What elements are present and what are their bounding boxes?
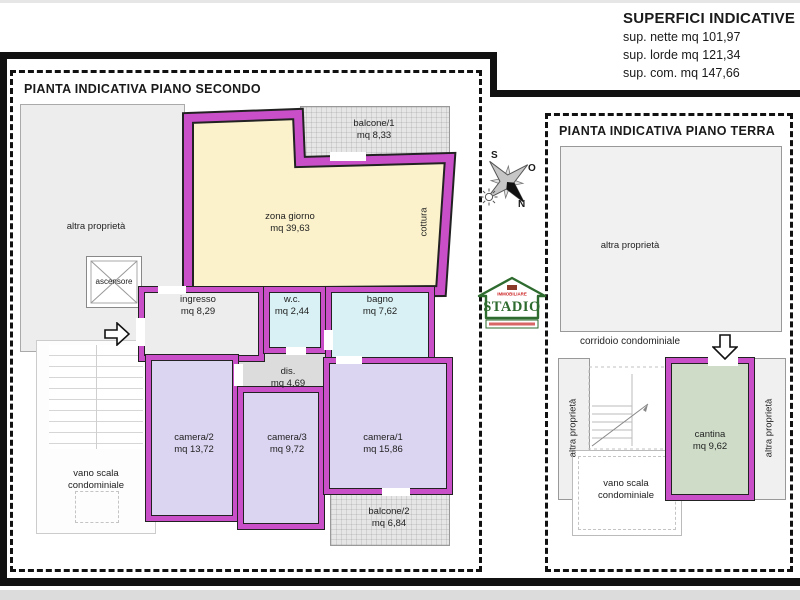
label-vano-scala-sx: vano scala condominiale: [56, 468, 136, 493]
camera1-area-value: mq 15,86: [323, 444, 443, 456]
balcone1-name: balcone/1: [314, 118, 434, 130]
zona-giorno-name: zona giorno: [230, 211, 350, 223]
frame-left: [0, 52, 7, 586]
stairs-divider: [96, 345, 97, 449]
stairs-terra-icon: [588, 366, 670, 450]
frame-bottom: [0, 578, 800, 586]
label-camera2: camera/2 mq 13,72: [134, 432, 254, 457]
frame-top-left: [0, 52, 497, 59]
balcone2-name: balcone/2: [329, 506, 449, 518]
sun-icon: [480, 188, 498, 206]
label-corridoio: corridoio condominiale: [545, 335, 715, 348]
zona-giorno-area-value: mq 39,63: [230, 223, 350, 235]
ingresso-area-value: mq 8,29: [138, 306, 258, 318]
page-top-edge: [0, 0, 800, 3]
area-altra-proprieta-top: [560, 146, 782, 332]
room-camera1: [324, 358, 452, 494]
door-opening-bagno: [324, 330, 333, 350]
cantina-area-value: mq 9,62: [666, 441, 754, 453]
stairs-landing: [75, 491, 119, 523]
label-strip-dx: altra proprietà: [764, 399, 775, 458]
camera3-area-value: mq 9,72: [237, 444, 337, 456]
door-opening-camera1: [336, 356, 362, 364]
superfici-com: sup. com. mq 147,66: [623, 65, 798, 81]
label-balcone2: balcone/2 mq 6,84: [329, 506, 449, 531]
balcone1-area-value: mq 8,33: [314, 130, 434, 142]
label-altra-proprieta-sx: altra proprietà: [26, 221, 166, 233]
stadio-logo: IMMOBILIARE STADIO: [477, 276, 547, 334]
frame-top-right: [490, 90, 800, 97]
bagno-name: bagno: [320, 294, 440, 306]
entry-arrow-icon: [104, 322, 130, 346]
label-vano-scala-dx: vano scala condominiale: [584, 478, 668, 503]
door-opening-wc: [286, 347, 306, 355]
door-opening-zona: [158, 286, 186, 294]
cantina-name: cantina: [666, 429, 754, 441]
superfici-nette: sup. nette mq 101,97: [623, 29, 798, 45]
label-ascensore: ascensore: [87, 277, 141, 287]
door-opening-entrance: [136, 318, 145, 346]
superfici-lorde: sup. lorde mq 121,34: [623, 47, 798, 63]
label-altra-proprieta-top: altra proprietà: [560, 240, 700, 252]
label-dis: dis. mq 4,69: [238, 366, 338, 391]
piano-terra-title: PIANTA INDICATIVA PIANO TERRA: [559, 124, 775, 138]
bagno-area-value: mq 7,62: [320, 306, 440, 318]
camera3-name: camera/3: [237, 432, 337, 444]
label-strip-sx: altra proprietà: [568, 399, 579, 458]
logo-top-text: IMMOBILIARE: [497, 292, 527, 297]
page-bottom-edge: [0, 590, 800, 600]
camera1-name: camera/1: [323, 432, 443, 444]
balcone2-area-value: mq 6,84: [329, 518, 449, 530]
label-balcone1: balcone/1 mq 8,33: [314, 118, 434, 143]
label-bagno: bagno mq 7,62: [320, 294, 440, 319]
logo-brand-text: STADIO: [483, 299, 541, 315]
ascensore-box: ascensore: [86, 256, 142, 308]
camera2-area-value: mq 13,72: [134, 444, 254, 456]
window-balcone2: [382, 488, 410, 496]
superfici-title: SUPERFICI INDICATIVE: [623, 10, 798, 27]
wc-area-value: mq 2,44: [259, 306, 325, 318]
ingresso-name: ingresso: [138, 294, 258, 306]
label-camera1: camera/1 mq 15,86: [323, 432, 443, 457]
wc-name: w.c.: [259, 294, 325, 306]
entry-arrow-terra-icon: [712, 334, 738, 360]
window-balcone1: [330, 152, 366, 161]
label-camera3: camera/3 mq 9,72: [237, 432, 337, 457]
label-zona-giorno: zona giorno mq 39,63: [230, 211, 350, 236]
superfici-block: SUPERFICI INDICATIVE sup. nette mq 101,9…: [623, 10, 798, 81]
camera2-name: camera/2: [134, 432, 254, 444]
label-ingresso: ingresso mq 8,29: [138, 294, 258, 319]
label-cottura: cottura: [419, 207, 430, 236]
dis-name: dis.: [238, 366, 338, 378]
piano-secondo-title: PIANTA INDICATIVA PIANO SECONDO: [24, 82, 261, 96]
label-wc: w.c. mq 2,44: [259, 294, 325, 319]
label-cantina: cantina mq 9,62: [666, 429, 754, 454]
room-camera3: [238, 387, 324, 529]
dis-area-value: mq 4,69: [238, 378, 338, 390]
